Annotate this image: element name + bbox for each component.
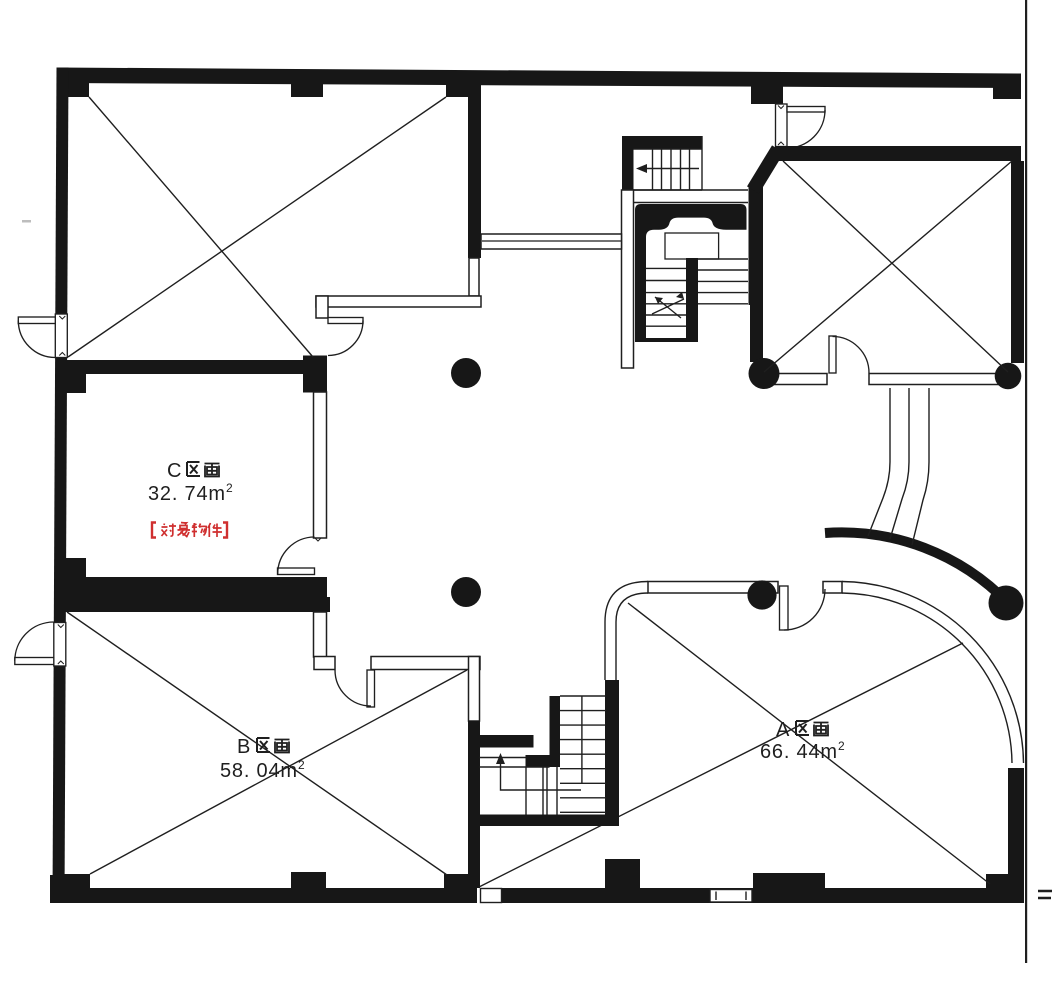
svg-text:2: 2 <box>838 739 845 753</box>
svg-text:2: 2 <box>226 481 233 495</box>
svg-text:2: 2 <box>298 758 305 772</box>
svg-text:66. 44m: 66. 44m <box>760 741 838 763</box>
svg-text:B: B <box>237 736 251 758</box>
svg-text:58. 04m: 58. 04m <box>220 760 298 782</box>
svg-text:A: A <box>776 719 790 741</box>
svg-text:C: C <box>167 460 182 482</box>
svg-text:32. 74m: 32. 74m <box>148 483 226 505</box>
